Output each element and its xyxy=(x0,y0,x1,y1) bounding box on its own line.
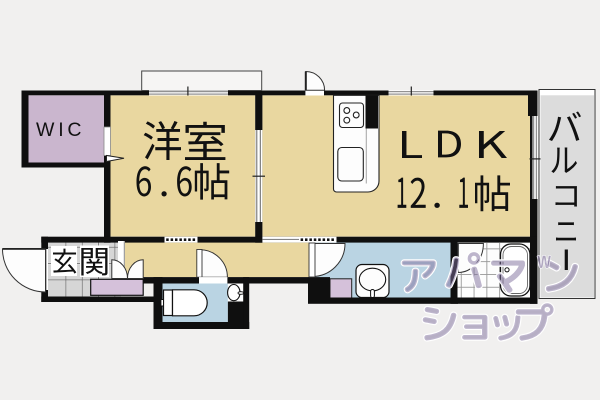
svg-text:WIC: WIC xyxy=(36,119,85,141)
